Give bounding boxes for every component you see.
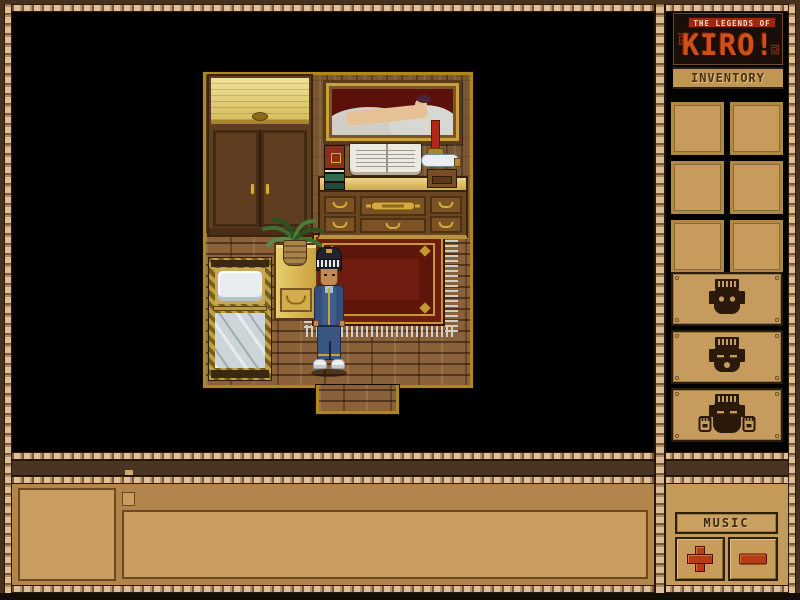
- tiki-mask-sleepy-icon: [701, 336, 753, 378]
- minus-icon: [739, 554, 767, 565]
- emote-button-1[interactable]: [671, 272, 783, 326]
- inventory-slot[interactable]: [730, 161, 783, 214]
- frame-border-mid1: [4, 452, 796, 460]
- frame-border-top: [4, 4, 796, 12]
- bedroom-scene: [12, 12, 655, 452]
- player-helmet-band: [316, 259, 342, 268]
- desk-drawer[interactable]: [324, 196, 356, 214]
- inventory-slot[interactable]: [671, 220, 724, 273]
- player-shoe: [331, 359, 345, 369]
- pillow: [218, 271, 262, 301]
- bottle[interactable]: [421, 154, 459, 167]
- game-logo: THE LEGENDS OF KIRO!: [673, 13, 783, 65]
- wardrobe-door-right[interactable]: [259, 130, 307, 227]
- player-shoe: [313, 359, 327, 369]
- bed[interactable]: [208, 257, 272, 381]
- ornate-plate: [371, 202, 415, 211]
- game-window: THE LEGENDS OF KIRO! INVENTORY: [0, 0, 800, 600]
- player-face: [320, 269, 338, 286]
- rug-fringe-right: [445, 240, 458, 332]
- bed-rail: [213, 306, 267, 311]
- door-handle: [265, 183, 270, 195]
- desk-drawer[interactable]: [324, 216, 356, 233]
- tiki-mask-eyes-open-icon: [701, 278, 753, 320]
- frame-border-left: [4, 4, 12, 593]
- game-viewport[interactable]: [12, 12, 655, 452]
- inventory-header: INVENTORY: [673, 67, 783, 89]
- wardrobe-door-left[interactable]: [213, 130, 259, 227]
- music-header: MUSIC: [675, 512, 778, 534]
- logo-tagline: THE LEGENDS OF: [688, 17, 776, 28]
- green-book: [324, 173, 345, 182]
- frame-border-right: [788, 4, 796, 593]
- inventory-slot[interactable]: [730, 102, 783, 155]
- inventory-slot[interactable]: [671, 161, 724, 214]
- message-panel: [12, 484, 655, 585]
- desk-drawer[interactable]: [430, 216, 462, 233]
- plus-icon: [687, 546, 713, 572]
- sidebar: THE LEGENDS OF KIRO! INVENTORY: [665, 12, 788, 452]
- player-pants: [317, 326, 341, 360]
- status-strip: [12, 460, 788, 476]
- emote-button-3[interactable]: [671, 388, 783, 442]
- small-box[interactable]: [427, 169, 457, 188]
- strip-marker[interactable]: [125, 470, 133, 475]
- doorway-floor: [319, 385, 396, 411]
- emote-button-2[interactable]: [671, 330, 783, 384]
- inventory-slot[interactable]: [671, 102, 724, 155]
- candle-stick: [431, 120, 440, 150]
- wardrobe-clasp: [252, 112, 268, 121]
- bed-blanket: [215, 313, 265, 368]
- book-stack[interactable]: [324, 145, 345, 191]
- nightstand-drawer[interactable]: [280, 288, 312, 312]
- desk-drawer[interactable]: [360, 218, 426, 233]
- frame-bottom-edge: [0, 593, 800, 600]
- door-handle: [250, 183, 255, 195]
- plant-pot: [283, 240, 307, 266]
- frame-divider-vertical: [654, 4, 666, 593]
- player-shadow: [311, 369, 347, 377]
- desk-drawer-ornate[interactable]: [360, 196, 426, 216]
- desk-drawer[interactable]: [430, 196, 462, 214]
- logo-title: KIRO!: [674, 28, 782, 62]
- music-volume-up-button[interactable]: [675, 537, 725, 581]
- message-text-box[interactable]: [122, 510, 648, 579]
- red-book: [324, 145, 345, 169]
- portrait-box: [18, 488, 116, 581]
- tiki-mask-hands-icon: [698, 393, 756, 437]
- inventory-slot[interactable]: [730, 220, 783, 273]
- teal-book: [324, 182, 345, 190]
- frame-border-bottom: [4, 585, 796, 593]
- player-character[interactable]: [309, 247, 349, 377]
- frame-border-mid2: [4, 476, 796, 484]
- bed-footboard: [211, 370, 269, 378]
- open-book[interactable]: [349, 143, 422, 176]
- wardrobe[interactable]: [207, 74, 313, 237]
- text-cursor-marker: [122, 492, 135, 506]
- music-panel: MUSIC: [665, 484, 788, 585]
- doorway[interactable]: [316, 385, 399, 414]
- music-volume-down-button[interactable]: [728, 537, 778, 581]
